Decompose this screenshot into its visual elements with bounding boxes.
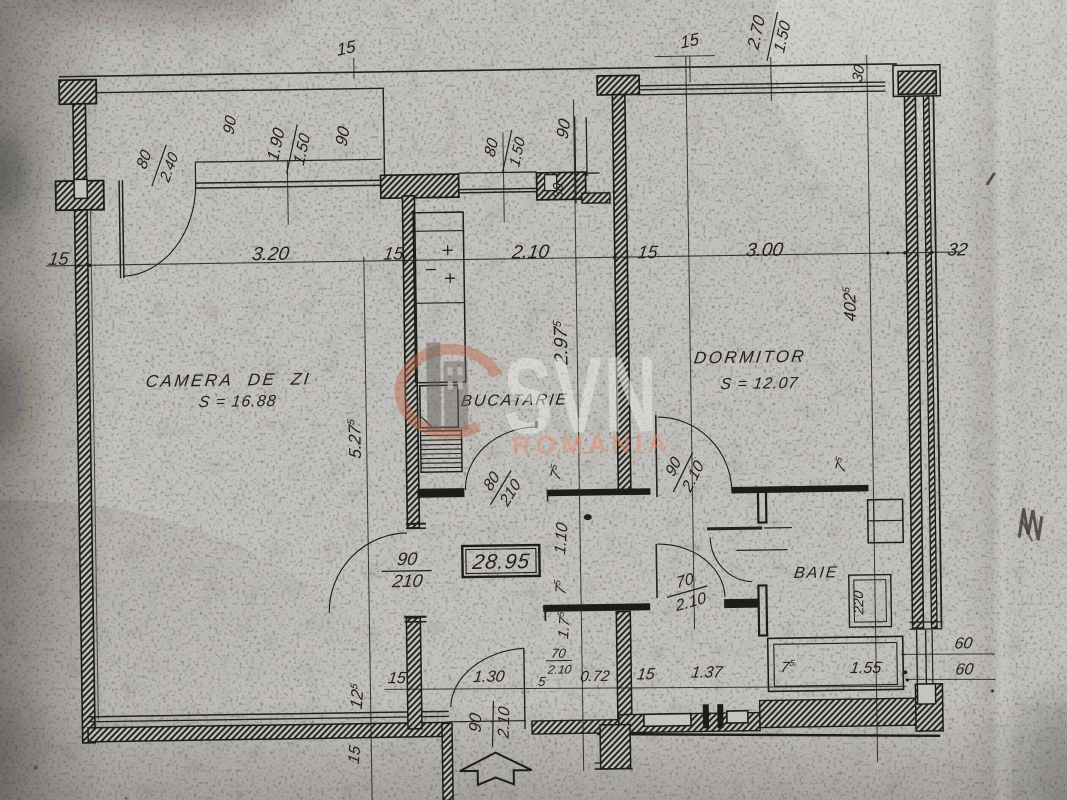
- svg-text:2.10: 2.10: [546, 662, 572, 676]
- svg-text:0.72: 0.72: [579, 668, 611, 685]
- svg-text:1.10: 1.10: [551, 521, 571, 556]
- svg-text:BAIE: BAIE: [793, 563, 840, 582]
- svg-text:30: 30: [550, 182, 566, 200]
- svg-text:32: 32: [946, 239, 968, 259]
- svg-text:210: 210: [390, 571, 424, 591]
- svg-text:15: 15: [636, 242, 659, 262]
- svg-text:DORMITOR: DORMITOR: [693, 347, 808, 368]
- svg-text:2.10: 2.10: [495, 705, 513, 740]
- svg-text:1.30: 1.30: [472, 668, 505, 686]
- svg-text:90: 90: [466, 711, 485, 733]
- svg-text:15: 15: [47, 249, 70, 269]
- svg-text:3.00: 3.00: [745, 240, 785, 262]
- svg-text:220: 220: [850, 589, 866, 615]
- svg-text:CAMERA DE ZI: CAMERA DE ZI: [145, 369, 313, 390]
- svg-text:90: 90: [396, 549, 418, 569]
- svg-text:1.37: 1.37: [690, 663, 724, 681]
- svg-text:ROMANIA: ROMANIA: [512, 428, 672, 460]
- svg-text:3.20: 3.20: [251, 244, 291, 266]
- svg-text:60: 60: [953, 634, 973, 652]
- svg-text:1.55: 1.55: [849, 659, 882, 677]
- svg-text:70: 70: [550, 646, 567, 661]
- svg-text:S = 16.88: S = 16.88: [198, 392, 278, 411]
- svg-text:60: 60: [954, 660, 974, 678]
- svg-text:15: 15: [636, 665, 656, 683]
- svg-text:S = 12.07: S = 12.07: [719, 374, 799, 393]
- svg-text:15: 15: [382, 244, 405, 264]
- svg-text:15: 15: [387, 669, 407, 687]
- svg-text:28.95: 28.95: [470, 550, 531, 574]
- svg-text:15: 15: [345, 744, 364, 766]
- svg-text:2.10: 2.10: [510, 242, 551, 264]
